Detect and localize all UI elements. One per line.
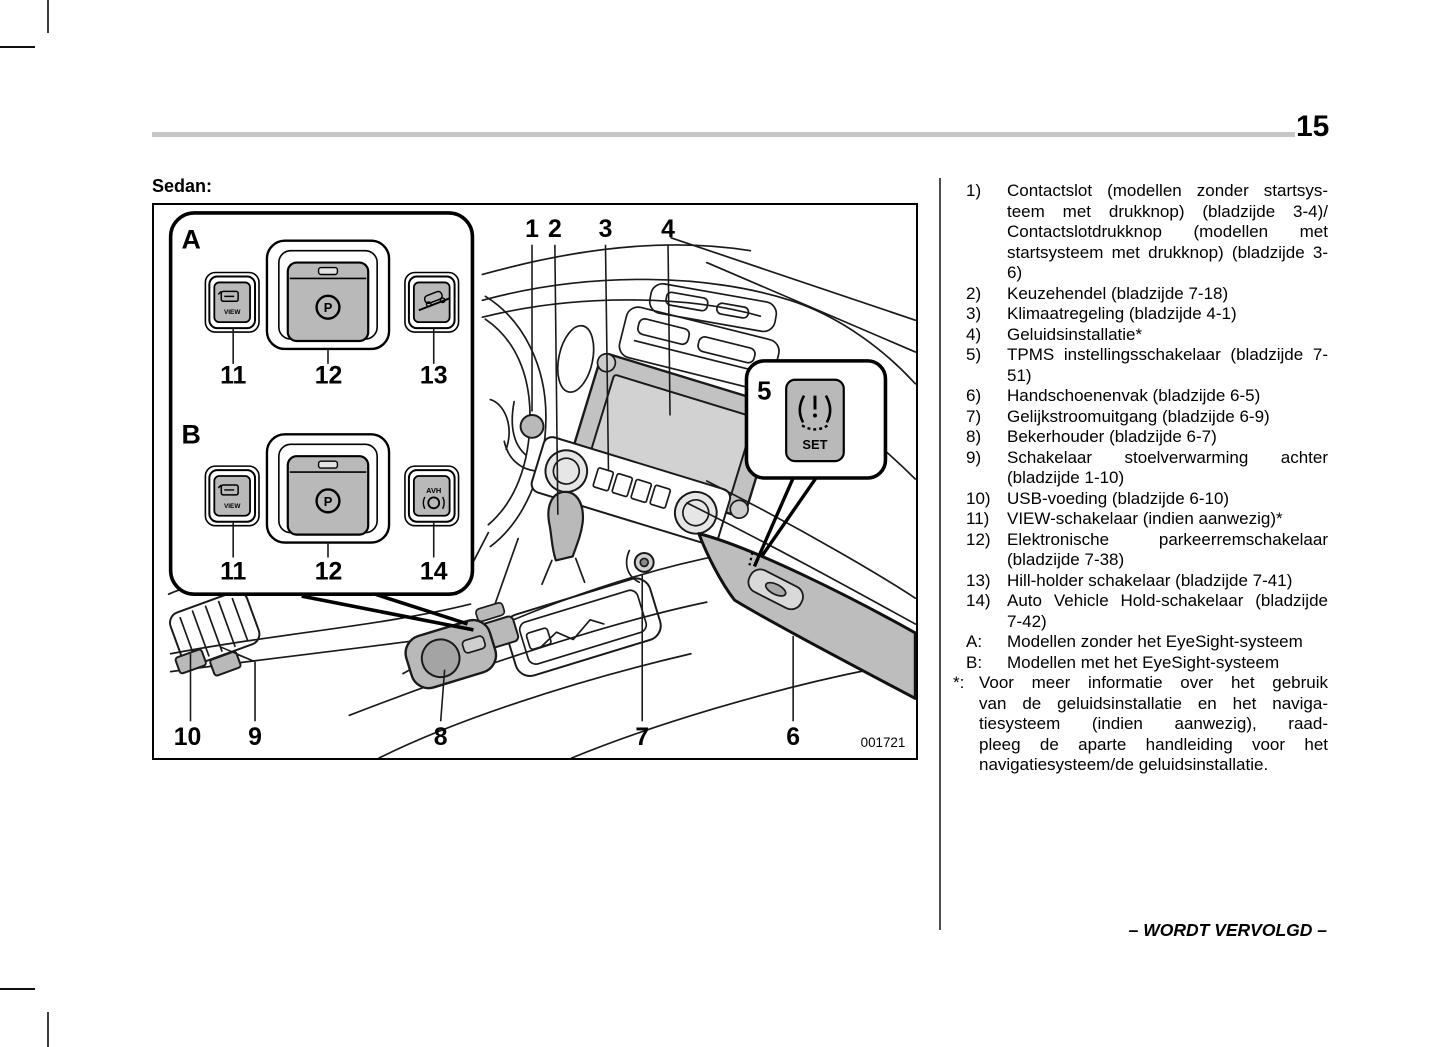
legend-item: 4)Geluidsinstallatie* xyxy=(966,325,1328,346)
inset-row-a-label: A xyxy=(182,225,201,255)
footer-continuation: – WORDT VERVOLGD – xyxy=(927,920,1327,941)
legend-item-text: Geluidsinstallatie* xyxy=(1007,325,1328,346)
legend-item-text: Handschoenenvak (bladzijde 6-5) xyxy=(1007,386,1328,407)
legend-item-line: Hill-holder schakelaar (bladzijde 7-41) xyxy=(1007,571,1328,592)
seat-heater-switches-art xyxy=(175,638,242,687)
legend-item: 13)Hill-holder schakelaar (bladzijde 7-4… xyxy=(966,571,1328,592)
legend-item-line: navigatiesysteem/de geluidsinstallatie. xyxy=(979,755,1328,776)
legend-item: 3)Klimaatregeling (bladzijde 4-1) xyxy=(966,304,1328,325)
view-switch-b: VIEW xyxy=(205,466,259,526)
callout-4: 4 xyxy=(661,216,675,243)
legend-item-text: Auto Vehicle Hold-schakelaar (bladzijde7… xyxy=(1007,591,1328,632)
legend-item-marker: 11) xyxy=(966,509,1007,530)
legend-item-marker: 4) xyxy=(966,325,1007,346)
callout-6: 6 xyxy=(786,724,800,751)
legend-item-line: Bekerhouder (bladzijde 6-7) xyxy=(1007,427,1328,448)
callout-7: 7 xyxy=(635,724,649,751)
legend-item-text: Voor meer informatie over het gebruikvan… xyxy=(979,673,1328,776)
legend-item-line: Keuzehendel (bladzijde 7-18) xyxy=(1007,284,1328,305)
legend-item-line: Contactslot (modellen zonder startsys- xyxy=(1007,181,1328,202)
inset-label-11b: 11 xyxy=(220,558,246,585)
legend-item-marker: 5) xyxy=(966,345,1007,386)
legend-item-line: Elektronische parkeerremschakelaar xyxy=(1007,530,1328,551)
legend-item-marker: *: xyxy=(953,673,979,776)
legend-item-text: USB-voeding (bladzijde 6-10) xyxy=(1007,489,1328,510)
legend-item-marker: 3) xyxy=(966,304,1007,325)
legend-item: 10)USB-voeding (bladzijde 6-10) xyxy=(966,489,1328,510)
legend-item: 8)Bekerhouder (bladzijde 6-7) xyxy=(966,427,1328,448)
dashboard-diagram: 1 2 3 4 10 9 8 7 6 001721 5 SET A B xyxy=(154,205,916,758)
legend-item-line: Handschoenenvak (bladzijde 6-5) xyxy=(1007,386,1328,407)
crop-mark-top-horizontal xyxy=(0,46,35,48)
legend-item-marker: A: xyxy=(966,632,1007,653)
figure-code: 001721 xyxy=(861,735,906,750)
legend-item-line: Voor meer informatie over het gebruik xyxy=(979,673,1328,694)
inset-label-11a: 11 xyxy=(220,363,246,390)
callout-10: 10 xyxy=(174,724,202,751)
ignition-button-art xyxy=(521,415,544,438)
gear-shift-knob-art xyxy=(548,492,583,561)
legend-item: B:Modellen met het EyeSight-systeem xyxy=(966,653,1328,674)
crop-mark-top-vertical xyxy=(47,0,49,33)
inset-label-12a: 12 xyxy=(315,363,343,390)
legend-item-text: Elektronische parkeerremschakelaar(bladz… xyxy=(1007,530,1328,571)
callout-5: 5 xyxy=(757,378,771,406)
legend-item: 11)VIEW-schakelaar (indien aanwezig)* xyxy=(966,509,1328,530)
parking-brake-switch-b: P xyxy=(267,434,389,542)
avh-switch: AVH xyxy=(405,466,459,526)
callout-3: 3 xyxy=(599,216,613,243)
legend-item: 6)Handschoenenvak (bladzijde 6-5) xyxy=(966,386,1328,407)
crop-mark-bottom-horizontal xyxy=(0,988,35,990)
legend-list: 1)Contactslot (modellen zonder startsys-… xyxy=(966,181,1328,776)
column-divider xyxy=(939,178,941,930)
callout-9: 9 xyxy=(248,724,262,751)
shift-gate-art xyxy=(502,575,665,680)
page-number: 15 xyxy=(1296,110,1329,144)
legend-item-line: 51) xyxy=(1007,366,1328,387)
legend-item-text: Keuzehendel (bladzijde 7-18) xyxy=(1007,284,1328,305)
legend-item: 2)Keuzehendel (bladzijde 7-18) xyxy=(966,284,1328,305)
legend-item-marker: 10) xyxy=(966,489,1007,510)
view-switch-b-label: VIEW xyxy=(224,503,241,510)
legend-item-text: Bekerhouder (bladzijde 6-7) xyxy=(1007,427,1328,448)
legend-item-line: Schakelaar stoelverwarming achter xyxy=(1007,448,1328,469)
legend-item-marker: 9) xyxy=(966,448,1007,489)
inset-switch-panel: A B VIEW P xyxy=(171,213,474,630)
legend-item: A:Modellen zonder het EyeSight-systeem xyxy=(966,632,1328,653)
legend-item-text: Schakelaar stoelverwarming achter(bladzi… xyxy=(1007,448,1328,489)
legend-item-line: Modellen zonder het EyeSight-systeem xyxy=(1007,632,1328,653)
avh-label: AVH xyxy=(426,486,441,495)
legend-item-line: (bladzijde 7-38) xyxy=(1007,550,1328,571)
legend-item-line: van de geluidsinstallatie en het naviga- xyxy=(979,694,1328,715)
legend-item: 12)Elektronische parkeerremschakelaar(bl… xyxy=(966,530,1328,571)
legend-item-line: Auto Vehicle Hold-schakelaar (bladzijde xyxy=(1007,591,1328,612)
parking-brake-switch-a: P xyxy=(267,241,389,349)
tpms-callout: 5 SET xyxy=(746,361,885,567)
callout-1: 1 xyxy=(525,216,539,243)
legend-item: 7)Gelijkstroomuitgang (bladzijde 6-9) xyxy=(966,407,1328,428)
inset-label-13: 13 xyxy=(420,363,448,390)
legend-item-marker: 8) xyxy=(966,427,1007,448)
legend-item-line: (bladzijde 1-10) xyxy=(1007,468,1328,489)
legend-item-marker: 12) xyxy=(966,530,1007,571)
legend-item-text: Gelijkstroomuitgang (bladzijde 6-9) xyxy=(1007,407,1328,428)
hill-holder-switch xyxy=(405,273,459,333)
legend-item-line: tiesysteem (indien aanwezig), raad- xyxy=(979,714,1328,735)
legend-item-line: teem met drukknop) (bladzijde 3-4)/ xyxy=(1007,202,1328,223)
legend-item-line: TPMS instellingsschakelaar (bladzijde 7- xyxy=(1007,345,1328,366)
view-switch-a-label: VIEW xyxy=(224,309,241,316)
legend-item-text: Contactslot (modellen zonder startsys-te… xyxy=(1007,181,1328,284)
legend-item-line: 6) xyxy=(1007,263,1328,284)
legend-item-text: VIEW-schakelaar (indien aanwezig)* xyxy=(1007,509,1328,530)
legend-item-line: USB-voeding (bladzijde 6-10) xyxy=(1007,489,1328,510)
dashboard-figure: 1 2 3 4 10 9 8 7 6 001721 5 SET A B xyxy=(152,203,918,760)
legend-item-text: Modellen zonder het EyeSight-systeem xyxy=(1007,632,1328,653)
legend-item-marker: 13) xyxy=(966,571,1007,592)
legend-item-marker: 6) xyxy=(966,386,1007,407)
legend-item-text: Klimaatregeling (bladzijde 4-1) xyxy=(1007,304,1328,325)
legend-item-line: startsysteem met drukknop) (bladzijde 3- xyxy=(1007,243,1328,264)
legend-item-text: TPMS instellingsschakelaar (bladzijde 7-… xyxy=(1007,345,1328,386)
section-label: Sedan: xyxy=(152,176,212,197)
glovebox-art xyxy=(699,534,915,699)
crop-mark-bottom-vertical xyxy=(47,1012,49,1047)
legend-item-line: pleeg de aparte handleiding voor het xyxy=(979,735,1328,756)
legend-item-marker: 14) xyxy=(966,591,1007,632)
legend-item: 14)Auto Vehicle Hold-schakelaar (bladzij… xyxy=(966,591,1328,632)
callout-8: 8 xyxy=(434,724,448,751)
legend-item-line: Gelijkstroomuitgang (bladzijde 6-9) xyxy=(1007,407,1328,428)
legend-item-marker: 1) xyxy=(966,181,1007,284)
legend-item-line: 7-42) xyxy=(1007,612,1328,633)
legend-item-text: Hill-holder schakelaar (bladzijde 7-41) xyxy=(1007,571,1328,592)
legend-item-text: Modellen met het EyeSight-systeem xyxy=(1007,653,1328,674)
legend-item: 1)Contactslot (modellen zonder startsys-… xyxy=(966,181,1328,284)
legend-item: 9)Schakelaar stoelverwarming achter(blad… xyxy=(966,448,1328,489)
legend-item-line: VIEW-schakelaar (indien aanwezig)* xyxy=(1007,509,1328,530)
view-switch-a: VIEW xyxy=(205,273,259,333)
tpms-set-label: SET xyxy=(802,437,827,452)
inset-label-12b: 12 xyxy=(315,558,343,585)
legend-item-marker: 2) xyxy=(966,284,1007,305)
legend-item-line: Modellen met het EyeSight-systeem xyxy=(1007,653,1328,674)
parking-brake-p-label: P xyxy=(324,300,333,315)
manual-page: { "page": { "number": "15", "section_lab… xyxy=(0,0,1445,1047)
inset-label-14: 14 xyxy=(420,558,448,585)
legend-item-marker: 7) xyxy=(966,407,1007,428)
header-rule xyxy=(152,132,1295,137)
legend-item-line: Geluidsinstallatie* xyxy=(1007,325,1328,346)
parking-brake-p-label: P xyxy=(324,494,333,509)
callout-2: 2 xyxy=(548,216,562,243)
legend-item-line: Contactslotdrukknop (modellen met xyxy=(1007,222,1328,243)
inset-row-b-label: B xyxy=(182,419,201,449)
legend-item-line: Klimaatregeling (bladzijde 4-1) xyxy=(1007,304,1328,325)
legend-item: *:Voor meer informatie over het gebruikv… xyxy=(966,673,1328,776)
legend-item: 5)TPMS instellingsschakelaar (bladzijde … xyxy=(966,345,1328,386)
legend-item-marker: B: xyxy=(966,653,1007,674)
